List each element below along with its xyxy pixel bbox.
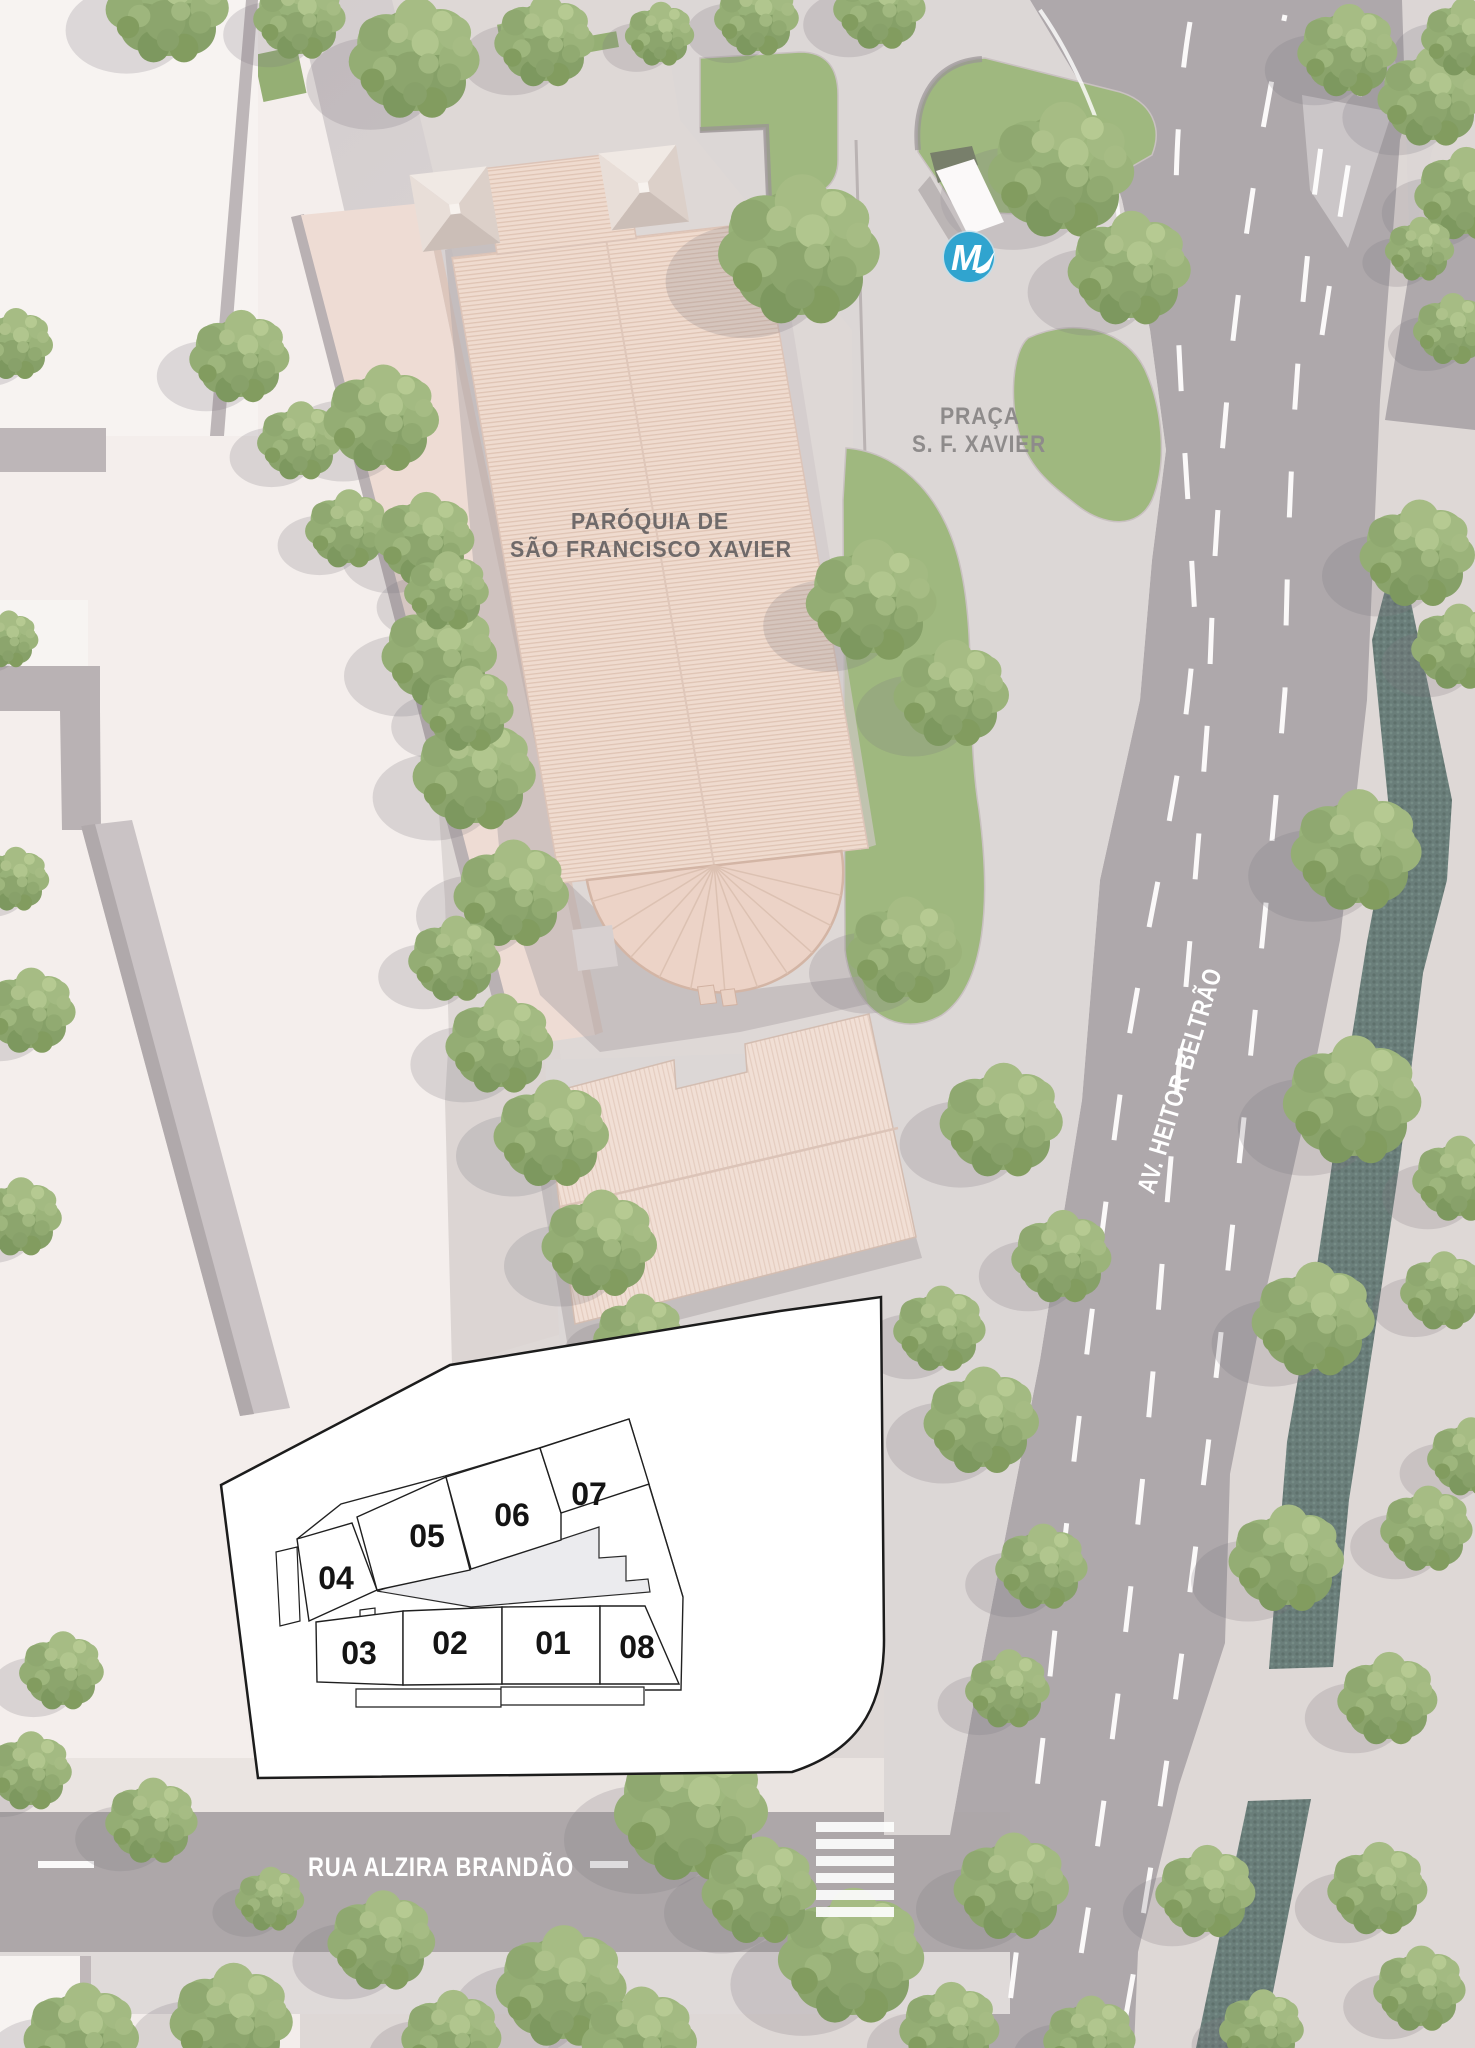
- svg-text:SÃO FRANCISCO XAVIER: SÃO FRANCISCO XAVIER: [510, 535, 792, 562]
- svg-text:PARÓQUIA DE: PARÓQUIA DE: [571, 507, 729, 534]
- svg-text:07: 07: [571, 1476, 607, 1512]
- svg-text:02: 02: [432, 1625, 468, 1661]
- svg-text:06: 06: [494, 1497, 530, 1533]
- svg-text:RUA ALZIRA BRANDÃO: RUA ALZIRA BRANDÃO: [308, 1851, 574, 1882]
- svg-text:04: 04: [318, 1560, 354, 1596]
- svg-text:03: 03: [341, 1635, 377, 1671]
- svg-text:S. F. XAVIER: S. F. XAVIER: [912, 431, 1046, 458]
- svg-text:01: 01: [535, 1625, 571, 1661]
- svg-text:08: 08: [619, 1629, 655, 1665]
- svg-text:05: 05: [409, 1518, 445, 1554]
- svg-text:PRAÇA: PRAÇA: [940, 403, 1020, 430]
